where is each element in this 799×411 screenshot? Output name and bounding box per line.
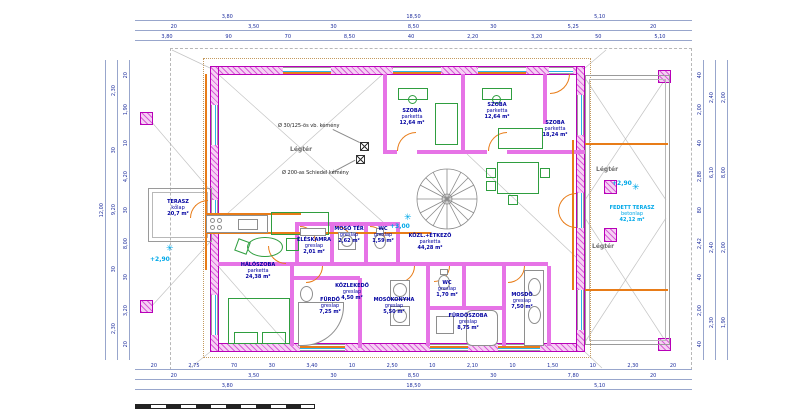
dim-value: 20 [171, 24, 177, 30]
dim-value: 8,50 [408, 24, 419, 30]
dining-chair-1 [486, 168, 496, 178]
dim-value: 2,30 [709, 317, 715, 328]
dim-value: 5,10 [654, 34, 665, 40]
wall-furdo-top [294, 276, 360, 280]
void-label-2: Légtér [596, 166, 618, 173]
pillar-left-bottom [140, 300, 153, 313]
room-label-eleskamra: ÉLÉSKAMRA greslap 2,01 m² [297, 237, 331, 255]
dim-row-bottom-1: 202,7570303,40102,50102,10101,50102,3020 [135, 360, 692, 370]
pillar-left-top [140, 112, 153, 125]
sill-top-3 [478, 72, 526, 74]
chimney-1 [360, 142, 369, 151]
dim-value: 2,40 [709, 92, 715, 103]
dim-value: 2,00 [721, 92, 727, 103]
dim-value: 20 [123, 341, 129, 347]
dim-value: 3,80 [161, 34, 172, 40]
dim-value: 8,00 [123, 238, 129, 249]
scale-bar [135, 404, 315, 409]
room-label-terasz: TERASZ kőlap 20,7 m² [167, 199, 189, 217]
dim-value: 12,00 [99, 203, 105, 217]
room-label-szoba1: SZOBA parketta 12,64 m² [400, 108, 425, 126]
dim-value: 3,20 [531, 34, 542, 40]
toilet-furdo [300, 286, 313, 302]
dim-value: 5,25 [568, 24, 579, 30]
room-label-furdo: FÜRDŐ greslap 7,25 m² [319, 297, 340, 315]
dim-row-bottom-3: 3,8018,505,10 [135, 380, 692, 390]
room-label-etkezo: KÖZL.+ÉTKEZŐ parketta 44,28 m² [409, 233, 452, 251]
dim-value: 40 [697, 341, 703, 347]
dim-value: 2,75 [188, 363, 199, 369]
room-label-mosokonyha: MOSÓKONYHA greslap 5,50 m² [374, 297, 415, 315]
pantry-shelf [300, 228, 326, 236]
dining-chair-3 [540, 168, 550, 178]
wall-bedroom-front-b [417, 150, 487, 154]
dim-value: 18,50 [406, 383, 420, 389]
dining-chair-4 [508, 195, 518, 205]
dim-value: 2,10 [467, 363, 478, 369]
dim-value: 4,20 [123, 171, 129, 182]
dim-value: 5,10 [594, 14, 605, 20]
window-right-1 [577, 95, 584, 135]
bed-szoba2 [498, 128, 543, 149]
dim-value: 8,50 [344, 34, 355, 40]
room-label-fedett-terasz: FEDETT TERASZ betonlap 42,12 m² [610, 205, 655, 223]
partition-bedrooms-2 [461, 74, 465, 152]
dim-value: 30 [111, 266, 117, 272]
dim-value: 10 [349, 363, 355, 369]
toilet-tank-wc2 [440, 269, 448, 275]
partition-bedrooms-1 [383, 74, 387, 152]
sill-bottom-3 [498, 346, 540, 348]
dim-value: 20 [650, 373, 656, 379]
dim-value: 2,20 [467, 34, 478, 40]
stove-burner-4 [217, 225, 222, 230]
room-label-szoba3: SZOBA parketta 18,24 m² [543, 120, 568, 138]
dim-value: 3,40 [306, 363, 317, 369]
dim-row-top-3: 3,8090708,50402,203,20505,10 [135, 31, 692, 41]
room-label-mosdo: MOSDÓ greslap 7,50 m² [511, 292, 532, 310]
dim-value: 80 [697, 207, 703, 213]
dim-value: 70 [285, 34, 291, 40]
wall-wc2-right [462, 266, 466, 310]
room-label-mosoter: MOSÓ TÉR greslap 2,62 m² [334, 226, 364, 244]
terrace-beam-1 [585, 143, 668, 145]
dim-col-left-3: 201,90104,20308,00303,2020 [120, 60, 130, 360]
sill-bottom-1 [300, 346, 345, 348]
dim-value: 2,88 [697, 171, 703, 182]
dim-value: 2,30 [111, 323, 117, 334]
dim-value: 7,80 [568, 373, 579, 379]
dim-value: 5,10 [594, 383, 605, 389]
sill-top-1 [283, 72, 331, 74]
dim-value: 10 [429, 363, 435, 369]
window-left-2 [211, 295, 218, 335]
room-label-szoba2: SZOBA parketta 12,64 m² [485, 102, 510, 120]
dim-col-right-3: 2,008,002,001,90 [718, 60, 728, 360]
chair-szoba1 [408, 95, 417, 104]
dim-value: 30 [111, 147, 117, 153]
sill-top-2 [393, 72, 441, 74]
heating-line-left [205, 74, 207, 270]
dim-value: 20 [123, 72, 129, 78]
dim-value: 70 [231, 363, 237, 369]
terrace-door-right [577, 193, 584, 228]
dining-chair-2 [486, 181, 496, 191]
snowflake-icon-center: ✳ [404, 214, 412, 223]
dim-value: 2,00 [721, 242, 727, 253]
kitchen-sink [238, 219, 258, 230]
dim-value: 8,50 [408, 373, 419, 379]
bed-foot-1 [234, 332, 258, 344]
window-left-1 [211, 105, 218, 145]
dim-value: 20 [151, 363, 157, 369]
dim-value: 1,50 [547, 363, 558, 369]
bed-szoba1 [435, 103, 458, 145]
dim-value: 50 [595, 34, 601, 40]
dim-value: 40 [408, 34, 414, 40]
dim-value: 8,00 [721, 167, 727, 178]
partition-entry [543, 74, 547, 124]
coffee-table [247, 237, 283, 257]
dim-value: 30 [123, 274, 129, 280]
dim-value: 40 [697, 274, 703, 280]
void-label-3: Légtér [592, 243, 614, 250]
level-mark-left: +2,90 [150, 256, 170, 263]
wall-bedroom-front-a [383, 150, 397, 154]
dim-value: 40 [697, 140, 703, 146]
bed-foot-2 [262, 332, 286, 344]
stove-burner-1 [210, 218, 215, 223]
void-label-1: Légtér [290, 146, 312, 153]
chimney-label-1: Ø 30/125-ös vb. kémény [278, 123, 339, 129]
dim-value: 2,40 [709, 242, 715, 253]
dim-value: 20 [650, 24, 656, 30]
wall-mosdo-left [502, 266, 506, 346]
snowflake-icon-left: ✳ [166, 245, 174, 254]
dim-value: 2,50 [387, 363, 398, 369]
dim-value: 30 [269, 363, 275, 369]
dim-value: 3,20 [123, 305, 129, 316]
dim-value: 10 [123, 140, 129, 146]
dim-row-top-2: 203,50308,50305,2520 [135, 21, 692, 31]
dim-value: 20 [171, 373, 177, 379]
dim-value: 3,50 [248, 24, 259, 30]
dim-row-bottom-2: 203,50308,50307,8020 [135, 370, 692, 380]
dim-value: 2,30 [627, 363, 638, 369]
chimney-2 [356, 155, 365, 164]
dim-value: 30 [123, 207, 129, 213]
dim-value: 10 [509, 363, 515, 369]
dim-col-left-2: 2,30309,20302,30 [108, 60, 118, 360]
dining-table [497, 162, 539, 194]
window-right-2 [577, 290, 584, 330]
chimney-label-2: Ø 200-as Schiedel kémény [282, 170, 349, 176]
dim-value: 6,10 [709, 167, 715, 178]
dim-value: 30 [490, 373, 496, 379]
dim-value: 2,00 [697, 104, 703, 115]
dim-value: 2,42 [697, 238, 703, 249]
dim-col-right-1: 402,00402,88802,42402,0040 [694, 60, 704, 360]
dim-value: 3,50 [248, 373, 259, 379]
room-label-wc1: WC greslap 1,59 m² [372, 226, 393, 244]
sill-bottom-2 [430, 346, 468, 348]
dim-row-top-1: 3,8018,505,10 [135, 11, 692, 21]
dim-value: 20 [670, 363, 676, 369]
dim-value: 30 [490, 24, 496, 30]
room-label-haloszoba: HÁLÓSZOBA parketta 24,38 m² [241, 262, 275, 280]
dim-value: 10 [590, 363, 596, 369]
dim-value: 40 [697, 72, 703, 78]
dim-col-right-2: 2,406,102,402,30 [706, 60, 716, 360]
floor-plan-canvas: Ø 30/125-ös vb. kémény Ø 200-as Schiedel… [0, 0, 799, 411]
dim-value: 18,50 [406, 14, 420, 20]
dim-value: 30 [330, 24, 336, 30]
dim-value: 3,80 [222, 14, 233, 20]
entry-door-opening [549, 67, 573, 74]
room-label-wc2: WC greslap 1,70 m² [436, 280, 457, 298]
terrace-beam-2 [585, 289, 668, 291]
dim-value: 3,80 [222, 383, 233, 389]
stove-burner-3 [210, 225, 215, 230]
dim-value: 30 [330, 373, 336, 379]
stove-burner-2 [217, 218, 222, 223]
washer-drum-1 [393, 283, 407, 297]
dim-value: 2,00 [697, 305, 703, 316]
dim-value: 9,20 [111, 204, 117, 215]
dim-value: 1,90 [123, 104, 129, 115]
kitchen-counter [206, 215, 268, 233]
room-label-furdoszoba: FÜRDŐSZOBA greslap 8,75 m² [449, 313, 488, 331]
dim-value: 2,30 [111, 85, 117, 96]
dim-value: 90 [225, 34, 231, 40]
wall-lobby [547, 266, 551, 346]
dim-col-left-1: 12,00 [96, 60, 106, 360]
snowflake-icon-right: ✳ [632, 184, 640, 193]
level-mark-right: +2,90 [612, 180, 632, 187]
dim-value: 1,90 [721, 317, 727, 328]
